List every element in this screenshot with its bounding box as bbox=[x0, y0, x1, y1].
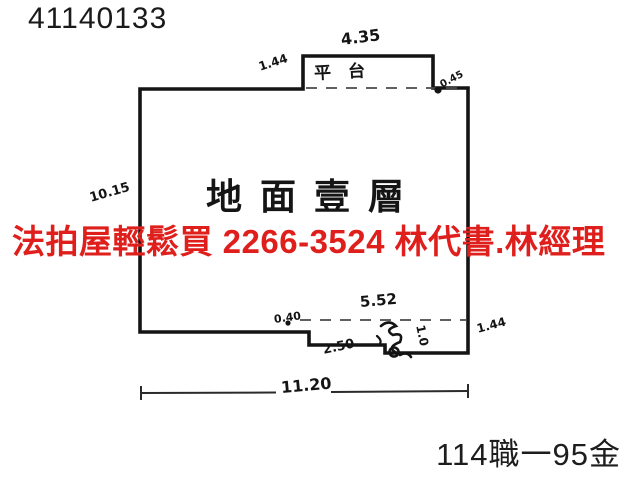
right-step-reference-dot bbox=[434, 86, 441, 93]
watermark-text: 法拍屋輕鬆買 2266-3524 林代書.林經理 bbox=[12, 215, 631, 263]
platform-label: 平台 bbox=[313, 55, 382, 84]
scanned-floor-plan-page: 41140133 4.35 1.44 0.45 平台 10.15 5.52 0.… bbox=[0, 0, 631, 480]
case-number: 114職一95金 bbox=[436, 429, 621, 474]
dim-bottom-inner-width: 5.52 bbox=[359, 290, 397, 311]
room-label: 地面壹層 bbox=[140, 168, 470, 220]
